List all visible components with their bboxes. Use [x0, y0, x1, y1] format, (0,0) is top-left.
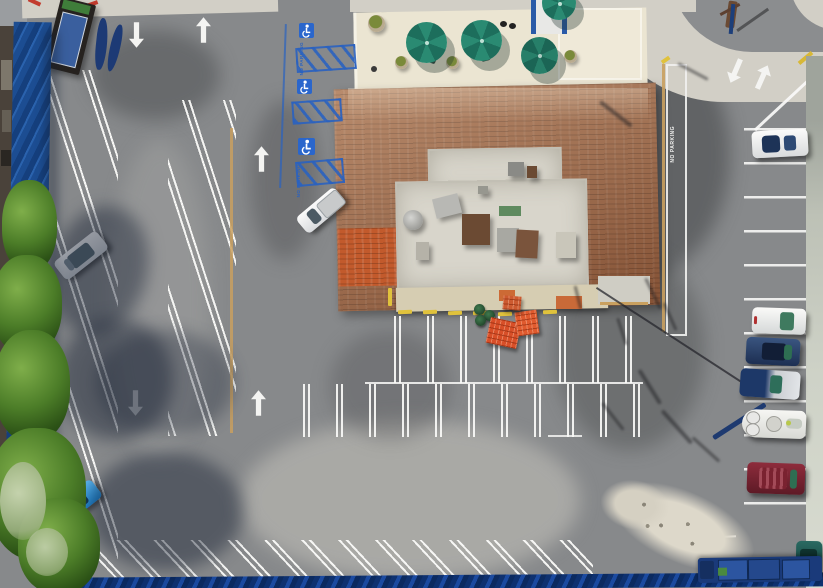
patio-planter-1	[368, 15, 385, 32]
handicap-aisle-2	[291, 98, 342, 124]
suv-windshield	[790, 469, 798, 488]
orange-pallet-stack-2	[514, 310, 539, 337]
convertible-rear-deck	[784, 135, 797, 151]
rooftop-unit-top-1	[508, 162, 524, 176]
loading-pad	[598, 276, 650, 304]
wheel-stop-5	[498, 312, 512, 316]
tree-blossoms-2	[26, 528, 68, 576]
arrow-up-top-left	[196, 17, 211, 43]
handicap-symbol-3	[298, 138, 315, 155]
wheel-stop-3	[448, 311, 462, 315]
right-edge-building-wall	[806, 56, 823, 588]
tree-shadow-3	[95, 330, 235, 435]
wheel-stop-7	[543, 310, 557, 314]
boat-motor-2	[746, 423, 760, 436]
aerial-photo-canvas: NO PARKING NO PARKING NO PARKING	[0, 0, 823, 588]
handicap-aisle-3	[295, 158, 345, 187]
tree-canopy-3	[0, 330, 70, 442]
patio-chair-3	[500, 21, 507, 27]
rooftop-unit-cylinder	[403, 210, 423, 230]
rooftop-vent-1	[478, 186, 488, 194]
wheelchair-icon	[298, 138, 315, 155]
truck-cargo-2	[748, 559, 780, 581]
handicap-symbol-1	[299, 23, 314, 38]
dirt-junk-1	[1, 60, 12, 90]
patio-umbrella-1	[406, 22, 447, 63]
vehicle-navy-sedan	[745, 337, 800, 367]
rooftop-unit-small	[416, 242, 429, 260]
parking-stripes-south-row-lower	[303, 384, 644, 437]
stall-divider-line	[365, 382, 643, 384]
rooftop-unit-brown-1	[462, 214, 490, 245]
dirt-junk-2	[2, 110, 11, 132]
vehicle-maroon-suv	[746, 462, 805, 495]
tree-blossoms-1	[0, 462, 46, 540]
patio-umbrella-2	[461, 20, 502, 61]
vehicle-white-convertible	[751, 129, 808, 159]
no-parking-text-left-1: NO PARKING	[300, 42, 305, 75]
tire-mark-7	[692, 436, 721, 462]
car-glass-green	[780, 312, 795, 330]
truck-green-item	[718, 568, 727, 576]
vehicle-blue-flatbed-truck	[698, 556, 822, 583]
end-line-south-lot	[548, 435, 582, 437]
wheel-stop-vertical	[388, 288, 392, 306]
rooftop-unit-brown-2	[515, 229, 538, 258]
wheelchair-icon	[297, 79, 312, 94]
patio-planter-3	[446, 56, 459, 69]
patio-umbrella-3	[521, 37, 558, 74]
patio-post	[371, 66, 377, 72]
suv-roof-rack	[759, 467, 788, 489]
rooftop-green-panel	[499, 206, 521, 216]
no-parking-zone-right: NO PARKING	[666, 64, 687, 336]
patio-planter-2	[395, 56, 408, 69]
truck-cab	[700, 561, 714, 579]
green-barrel-3	[475, 315, 486, 326]
dirt-junk-3	[1, 150, 11, 166]
rooftop-unit-light	[556, 232, 576, 258]
wheel-stop-1	[398, 310, 412, 314]
patio-planter-4	[564, 50, 577, 63]
wheel-stop-2	[423, 310, 437, 314]
orange-pallet-stack-3	[502, 295, 521, 311]
roof-orange-section	[337, 227, 400, 286]
no-parking-text-right: NO PARKING	[671, 126, 676, 163]
car-taillight	[754, 316, 757, 324]
vehicle-white-boat	[742, 409, 807, 439]
truck-cargo-3	[782, 559, 810, 579]
car-glass	[762, 342, 787, 360]
patio-chair-4	[509, 23, 516, 29]
tree-shadow-4	[88, 452, 243, 570]
no-parking-text-left-2: NO PARKING	[297, 164, 302, 197]
car-glass	[769, 375, 782, 394]
vehicle-silver-navy-covered-car	[739, 368, 801, 400]
patio-upper-pad	[558, 8, 642, 80]
wheelchair-icon	[299, 23, 314, 38]
convertible-navy-top	[762, 135, 781, 153]
curb-line-tan-right	[662, 64, 665, 332]
boat-console	[766, 416, 783, 433]
arrow-up-left-lot-lower	[251, 390, 266, 416]
arrow-down-top-left	[129, 22, 144, 48]
car-windshield	[784, 345, 793, 360]
vehicle-white-sedan	[752, 307, 807, 335]
arrow-up-left-lot-center	[254, 146, 269, 172]
rooftop-unit-top-2	[527, 166, 537, 178]
handicap-symbol-2	[297, 79, 312, 94]
